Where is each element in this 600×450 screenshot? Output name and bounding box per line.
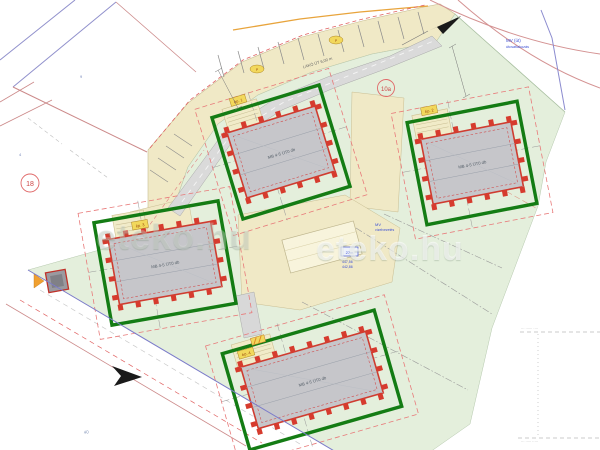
svg-text:10a: 10a (381, 87, 392, 93)
svg-text:442,86: 442,86 (342, 265, 353, 269)
road-tag-1: P (250, 65, 264, 73)
site-plan-drawing: ép. 1 MB 4-5 ÜT0 db ép. 2 MB 4-5 ÜT0 db (0, 0, 600, 450)
note-40: 40 (83, 429, 89, 435)
svg-text:447,56: 447,56 (342, 260, 353, 264)
parcel-18-badge: 18 (21, 174, 39, 192)
titleblock-faint-frame (518, 332, 600, 438)
site-plan: ép. 1 MB 4-5 ÜT0 db ép. 2 MB 4-5 ÜT0 db (0, 0, 600, 450)
titleblock-note-top: ··· ······ ···· (521, 327, 538, 331)
transformer-box (45, 269, 68, 292)
titleblock-note-bottom: ··· ····· ····· (521, 440, 538, 444)
blue-note-northeast: MV (út) útcsatlakozás (506, 38, 529, 49)
note-4: 4 (19, 152, 22, 157)
svg-text:vízelvezetés: vízelvezetés (375, 228, 395, 232)
svg-text:MV: MV (375, 222, 381, 227)
note-9: 9 (80, 74, 83, 79)
road-direction-arrow-icon (112, 366, 142, 386)
svg-text:27m: 27m (346, 250, 354, 255)
svg-text:útcsatlakozás: útcsatlakozás (506, 45, 529, 49)
svg-text:18: 18 (26, 181, 34, 188)
svg-text:MV (út): MV (út) (506, 38, 521, 43)
road-tag-2: P (329, 36, 343, 44)
